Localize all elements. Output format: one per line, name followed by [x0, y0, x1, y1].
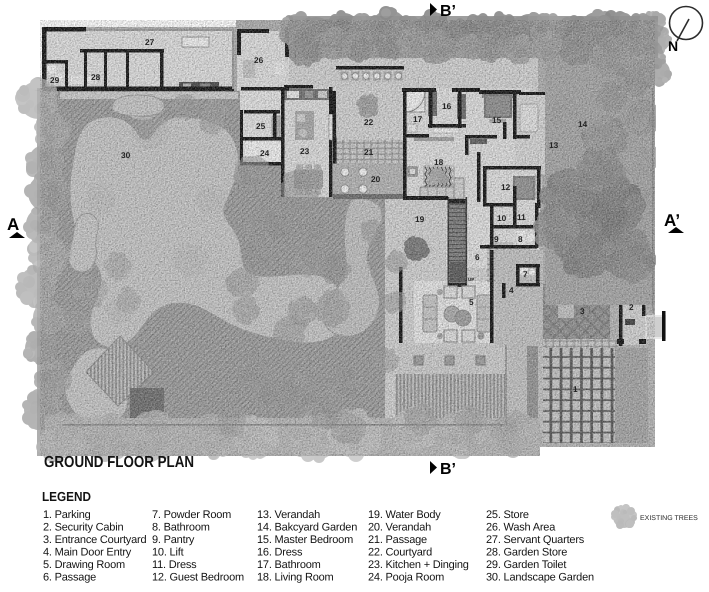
- svg-text:30. Landscape Garden: 30. Landscape Garden: [486, 572, 594, 584]
- svg-text:9: 9: [494, 234, 499, 244]
- svg-text:20. Verandah: 20. Verandah: [368, 522, 431, 534]
- svg-text:14. Bakcyard Garden: 14. Bakcyard Garden: [257, 522, 357, 534]
- svg-text:5: 5: [469, 297, 474, 307]
- svg-text:19. Water Body: 19. Water Body: [368, 509, 441, 521]
- svg-text:25. Store: 25. Store: [486, 509, 529, 521]
- svg-text:B’: B’: [440, 3, 456, 20]
- svg-text:20: 20: [371, 174, 381, 184]
- svg-text:6. Passage: 6. Passage: [43, 572, 96, 584]
- svg-text:12: 12: [501, 182, 511, 192]
- svg-text:17. Bathroom: 17. Bathroom: [257, 559, 321, 571]
- svg-text:GROUND FLOOR PLAN: GROUND FLOOR PLAN: [44, 454, 194, 471]
- svg-text:21. Passage: 21. Passage: [368, 534, 427, 546]
- svg-text:2: 2: [629, 302, 634, 312]
- svg-text:18: 18: [434, 157, 444, 167]
- svg-text:16: 16: [442, 101, 452, 111]
- svg-text:A’: A’: [664, 211, 680, 230]
- svg-text:11. Dress: 11. Dress: [152, 559, 197, 571]
- svg-text:1. Parking: 1. Parking: [43, 509, 91, 521]
- svg-text:9. Pantry: 9. Pantry: [152, 534, 195, 546]
- svg-text:29. Garden Toilet: 29. Garden Toilet: [486, 559, 566, 571]
- svg-text:8. Bathroom: 8. Bathroom: [152, 522, 210, 534]
- svg-text:EXISTING TREES: EXISTING TREES: [640, 515, 698, 522]
- svg-text:7: 7: [523, 269, 528, 279]
- svg-text:17: 17: [413, 114, 423, 124]
- svg-text:B’: B’: [440, 461, 456, 478]
- svg-text:13: 13: [549, 140, 559, 150]
- svg-text:5. Drawing Room: 5. Drawing Room: [43, 559, 125, 571]
- svg-text:26. Wash Area: 26. Wash Area: [486, 522, 556, 534]
- svg-text:2. Security Cabin: 2. Security Cabin: [43, 522, 123, 534]
- svg-text:12. Guest Bedroom: 12. Guest Bedroom: [152, 572, 244, 584]
- svg-text:30: 30: [121, 150, 131, 160]
- svg-text:N: N: [668, 38, 678, 54]
- svg-text:1: 1: [573, 384, 578, 394]
- svg-text:28. Garden Store: 28. Garden Store: [486, 547, 567, 559]
- svg-text:3. Entrance Courtyard: 3. Entrance Courtyard: [43, 534, 146, 546]
- svg-text:4. Main Door Entry: 4. Main Door Entry: [43, 547, 132, 559]
- svg-text:11: 11: [517, 212, 526, 222]
- svg-text:26: 26: [254, 55, 264, 65]
- svg-text:14: 14: [578, 119, 588, 129]
- svg-text:24. Pooja Room: 24. Pooja Room: [368, 572, 444, 584]
- svg-text:15: 15: [492, 115, 502, 125]
- svg-text:27. Servant Quarters: 27. Servant Quarters: [486, 534, 585, 546]
- svg-text:UP: UP: [468, 277, 474, 282]
- svg-text:10: 10: [497, 213, 507, 223]
- svg-text:22. Courtyard: 22. Courtyard: [368, 547, 432, 559]
- svg-text:3: 3: [580, 306, 585, 316]
- svg-text:6: 6: [475, 252, 480, 262]
- svg-text:A: A: [7, 215, 19, 234]
- svg-text:22: 22: [364, 117, 374, 127]
- svg-text:LEGEND: LEGEND: [42, 489, 91, 504]
- svg-text:29: 29: [50, 75, 60, 85]
- svg-text:7. Powder Room: 7. Powder Room: [152, 509, 231, 521]
- svg-text:28: 28: [91, 72, 101, 82]
- svg-text:8: 8: [518, 234, 523, 244]
- svg-text:19: 19: [415, 214, 425, 224]
- svg-text:23: 23: [300, 146, 310, 156]
- svg-text:15. Master Bedroom: 15. Master Bedroom: [257, 534, 353, 546]
- svg-text:21: 21: [364, 147, 374, 157]
- svg-text:10. Lift: 10. Lift: [152, 547, 184, 559]
- svg-text:24: 24: [260, 148, 270, 158]
- svg-text:13. Verandah: 13. Verandah: [257, 509, 320, 521]
- svg-text:16. Dress: 16. Dress: [257, 547, 303, 559]
- svg-text:4: 4: [509, 285, 514, 295]
- svg-text:23. Kitchen + Dinging: 23. Kitchen + Dinging: [368, 559, 469, 571]
- svg-text:25: 25: [256, 121, 266, 131]
- svg-text:18. Living Room: 18. Living Room: [257, 572, 334, 584]
- svg-text:27: 27: [145, 37, 155, 47]
